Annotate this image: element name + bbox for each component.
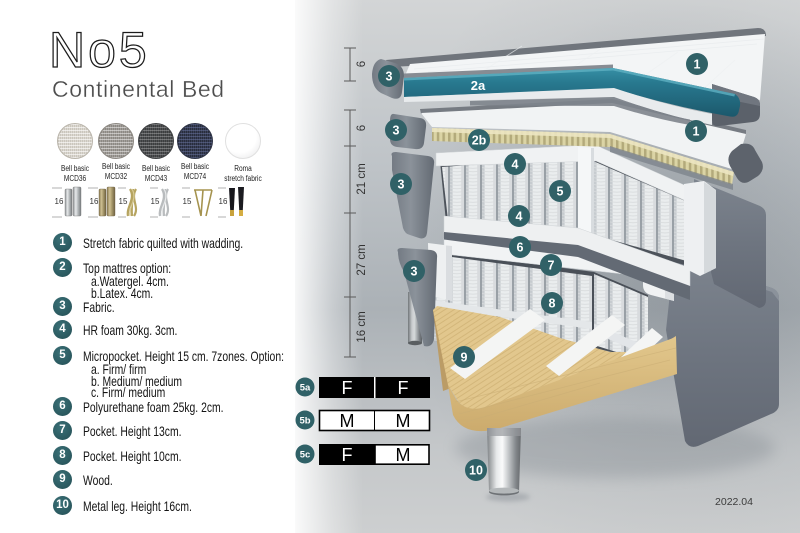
svg-text:F: F — [398, 378, 409, 398]
svg-text:5a: 5a — [300, 383, 311, 394]
svg-text:M: M — [396, 445, 411, 465]
svg-text:1: 1 — [693, 125, 700, 139]
svg-text:2b: 2b — [472, 134, 487, 148]
svg-text:27 cm: 27 cm — [356, 244, 368, 275]
svg-text:M: M — [396, 411, 411, 431]
svg-text:4: 4 — [512, 158, 519, 172]
svg-text:7: 7 — [548, 259, 555, 273]
svg-text:M: M — [340, 411, 355, 431]
svg-text:2a: 2a — [471, 78, 486, 93]
svg-text:6: 6 — [356, 125, 368, 131]
svg-text:9: 9 — [461, 351, 468, 365]
svg-text:5c: 5c — [300, 450, 311, 461]
svg-text:6: 6 — [356, 61, 368, 67]
svg-text:3: 3 — [411, 265, 418, 279]
svg-text:3: 3 — [398, 178, 405, 192]
svg-text:4: 4 — [516, 210, 523, 224]
svg-text:2022.04: 2022.04 — [715, 496, 753, 508]
svg-text:1: 1 — [694, 58, 701, 72]
svg-text:3: 3 — [393, 124, 400, 138]
svg-text:16 cm: 16 cm — [356, 311, 368, 342]
svg-text:F: F — [342, 445, 353, 465]
svg-text:10: 10 — [469, 464, 483, 478]
svg-text:5b: 5b — [299, 416, 310, 427]
svg-text:F: F — [342, 378, 353, 398]
svg-text:6: 6 — [517, 241, 524, 255]
svg-text:21 cm: 21 cm — [356, 163, 368, 194]
svg-text:8: 8 — [549, 297, 556, 311]
svg-text:3: 3 — [386, 70, 393, 84]
svg-text:5: 5 — [557, 185, 564, 199]
